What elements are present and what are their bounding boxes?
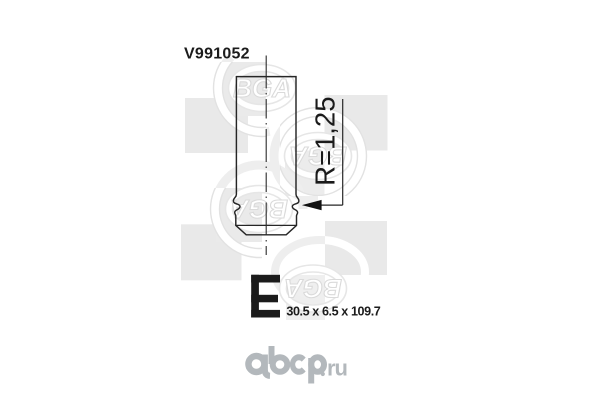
svg-text:R=1,25: R=1,25 bbox=[310, 96, 341, 185]
svg-text:ru: ru bbox=[327, 356, 347, 381]
svg-text:V991052: V991052 bbox=[184, 46, 250, 63]
svg-text:BGA: BGA bbox=[233, 73, 291, 103]
svg-text:30.5 x 6.5 x 109.7: 30.5 x 6.5 x 109.7 bbox=[286, 304, 380, 318]
svg-text:BGA: BGA bbox=[284, 274, 342, 304]
